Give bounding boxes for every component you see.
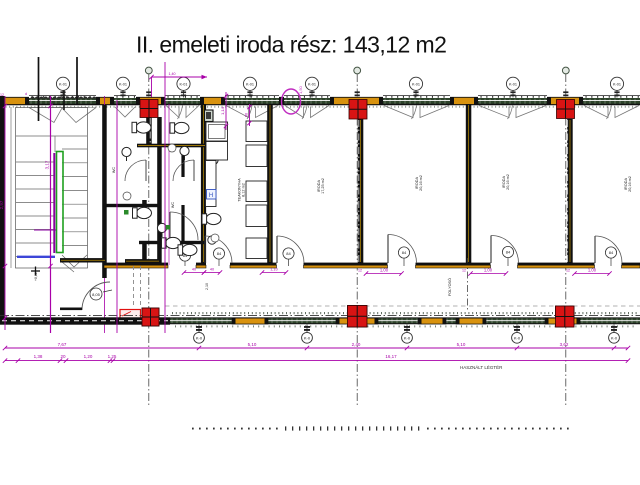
svg-text:12: 12 [462, 269, 466, 273]
svg-text:K-0: K-0 [404, 336, 411, 341]
svg-text:1,00: 1,00 [380, 268, 389, 273]
svg-text:K-01: K-01 [613, 83, 621, 87]
svg-text:8,12 m2: 8,12 m2 [242, 183, 246, 197]
svg-text:3,17: 3,17 [45, 160, 50, 169]
svg-text:40: 40 [192, 268, 196, 272]
svg-text:WC: WC [171, 202, 175, 209]
svg-text:K-01: K-01 [412, 83, 420, 87]
svg-text:K-01: K-01 [179, 83, 187, 87]
svg-text:12: 12 [566, 269, 570, 273]
svg-text:17,25 m2: 17,25 m2 [321, 178, 325, 194]
svg-text:K-0: K-0 [304, 336, 311, 341]
svg-text:84: 84 [286, 251, 291, 256]
svg-text:84: 84 [402, 250, 407, 255]
svg-text:1,00: 1,00 [588, 268, 597, 273]
svg-text:20,16 m2: 20,16 m2 [506, 174, 510, 190]
svg-text:3,62: 3,62 [560, 342, 569, 347]
svg-text:8,05: 8,05 [92, 292, 101, 297]
svg-text:1,20: 1,20 [84, 354, 93, 359]
svg-text:II. emeleti iroda rész: 143,12: II. emeleti iroda rész: 143,12 m2 [136, 32, 446, 58]
svg-text:12: 12 [358, 269, 362, 273]
svg-text:20,16 m2: 20,16 m2 [419, 175, 423, 191]
svg-text:2,97: 2,97 [0, 200, 4, 209]
svg-text:20: 20 [60, 354, 66, 359]
svg-text:+8,82: +8,82 [34, 272, 38, 281]
svg-text:HASZNÁLT LÉGTÉR: HASZNÁLT LÉGTÉR [460, 364, 503, 370]
svg-text:1,38: 1,38 [34, 354, 43, 359]
svg-text:K-01: K-01 [119, 83, 127, 87]
svg-text:1,50: 1,50 [298, 85, 303, 94]
svg-text:1,25: 1,25 [108, 354, 117, 359]
svg-text:1,14: 1,14 [220, 106, 225, 115]
svg-text:20,16 m2: 20,16 m2 [628, 176, 632, 192]
svg-text:5,10: 5,10 [457, 342, 466, 347]
svg-text:12: 12 [0, 93, 4, 97]
svg-text:WC: WC [112, 167, 116, 174]
svg-text:84: 84 [506, 250, 511, 255]
svg-text:FOLYOSÓ: FOLYOSÓ [447, 278, 452, 296]
svg-text:K-0: K-0 [611, 336, 618, 341]
svg-text:K-01: K-01 [509, 83, 517, 87]
svg-text:H: H [209, 193, 213, 199]
svg-text:84: 84 [609, 250, 614, 255]
svg-text:1,00: 1,00 [484, 268, 493, 273]
svg-text:16,17: 16,17 [385, 354, 397, 359]
svg-text:2,40: 2,40 [352, 342, 361, 347]
svg-text:K-01: K-01 [308, 83, 316, 87]
svg-text:d: d [25, 92, 27, 96]
svg-text:K-0: K-0 [196, 336, 203, 341]
svg-text:1,40: 1,40 [169, 72, 176, 76]
svg-text:40: 40 [210, 268, 214, 272]
svg-text:2,10: 2,10 [205, 283, 209, 290]
svg-text:7,67: 7,67 [58, 342, 67, 347]
svg-text:90: 90 [245, 113, 249, 117]
svg-text:84: 84 [217, 251, 222, 256]
svg-text:5,10: 5,10 [248, 342, 257, 347]
svg-text:K-01: K-01 [59, 83, 67, 87]
svg-text:1,10: 1,10 [270, 268, 277, 272]
svg-text:K-0: K-0 [514, 336, 521, 341]
svg-text:K-01: K-01 [246, 83, 254, 87]
